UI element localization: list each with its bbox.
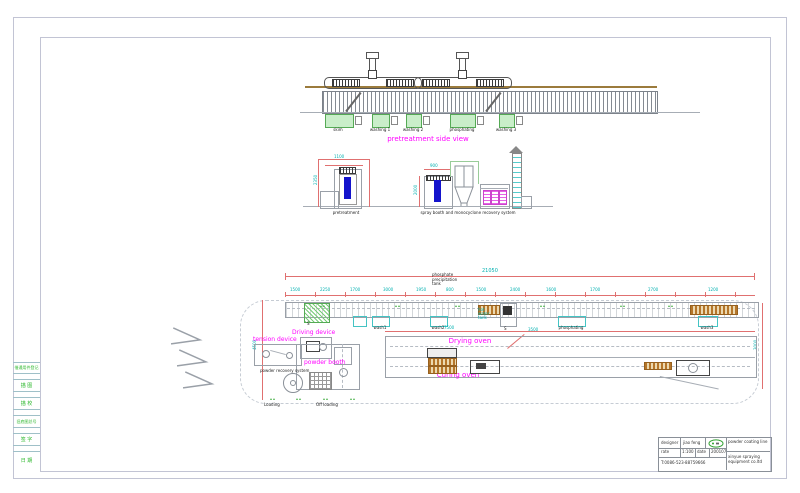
hot-tank-note: hot water tank bbox=[478, 308, 489, 320]
tension-wheel bbox=[286, 352, 293, 359]
fan-icon bbox=[368, 70, 377, 79]
stack-cap bbox=[366, 52, 379, 59]
tank-fitting bbox=[391, 116, 398, 125]
tank-fitting bbox=[516, 116, 523, 125]
scale-value: 1:100 bbox=[682, 450, 694, 455]
dim-value: 2700 bbox=[648, 288, 658, 292]
strip-divider bbox=[13, 379, 40, 380]
side-view-title: pretreatment side view bbox=[358, 136, 498, 143]
hanger-marks: ▴▴ bbox=[540, 304, 546, 308]
section-hatch bbox=[339, 167, 356, 174]
title-block-line bbox=[705, 437, 706, 448]
strip-cell-label: 描 图 bbox=[13, 382, 40, 389]
chimney-arrow-icon bbox=[509, 146, 523, 153]
recovery-fan-hub bbox=[290, 380, 296, 386]
hanger-marks: ▴▴ bbox=[323, 397, 329, 401]
section-tank bbox=[320, 191, 339, 209]
oven-heater-bar bbox=[428, 358, 457, 366]
tension-wheel bbox=[262, 350, 270, 358]
dim-value: 2400 bbox=[510, 288, 520, 292]
tank-label: washing 3 bbox=[486, 128, 526, 133]
dim-value: 7500 bbox=[444, 326, 454, 330]
powder-pipe bbox=[450, 161, 479, 162]
strip-divider bbox=[13, 391, 40, 392]
spray-system-label: spray booth and monocyclone recovery sys… bbox=[413, 211, 523, 216]
strip-divider bbox=[13, 427, 40, 428]
dim-line bbox=[762, 303, 763, 389]
drawing-sheet: 借通用件登记 描 图 描 校 旧底图总号 签 字 日 期 skim washin… bbox=[0, 0, 800, 493]
phosphate-note-line: tank bbox=[432, 282, 457, 287]
recovery-filter-grid bbox=[309, 372, 332, 390]
driving-device-label: Driving device bbox=[292, 330, 335, 336]
tunnel-heater-bar bbox=[690, 305, 738, 315]
tension-device-label: tension device bbox=[253, 337, 297, 343]
filter-top-line bbox=[480, 188, 508, 189]
dim-value: 3000 bbox=[383, 288, 393, 292]
tank-washing1 bbox=[372, 114, 390, 128]
recovery-fan-box bbox=[521, 196, 532, 209]
dim-value: 1500 bbox=[290, 288, 300, 292]
tank-label: washing 2 bbox=[393, 128, 433, 133]
pretreatment-label: pretreatment bbox=[315, 211, 377, 216]
dim-tick bbox=[285, 273, 286, 280]
strip-divider bbox=[13, 362, 40, 363]
oven-heater-bar bbox=[428, 366, 457, 374]
oven-conveyor-line bbox=[390, 346, 750, 347]
designer-label: designer bbox=[661, 441, 678, 446]
tank-washing2 bbox=[406, 114, 422, 128]
duct-hatch bbox=[422, 79, 450, 87]
strip-divider bbox=[13, 445, 40, 446]
date-value: 200107 bbox=[711, 450, 726, 455]
oven-heater-bar bbox=[644, 362, 672, 370]
tunnel-opening bbox=[344, 177, 351, 199]
dim-tick bbox=[754, 273, 755, 280]
tank-fitting bbox=[477, 116, 484, 125]
title-block-line bbox=[658, 457, 726, 458]
off-loading-label: Off loading bbox=[316, 403, 338, 408]
title-block-line bbox=[709, 448, 710, 457]
tank-fitting bbox=[423, 116, 430, 125]
hanger-marks: ▴▴ bbox=[668, 304, 674, 308]
fan-icon bbox=[458, 70, 467, 79]
title-block-line bbox=[695, 448, 696, 457]
strip-divider bbox=[13, 397, 40, 398]
burner-fan-icon bbox=[688, 363, 698, 373]
dim-line bbox=[285, 276, 755, 277]
loading-label: Loading bbox=[264, 403, 280, 408]
dim-value: 2250 bbox=[320, 288, 330, 292]
dim-line bbox=[385, 331, 755, 332]
hanger-marks: ▴▴ bbox=[270, 397, 276, 401]
filter-cartridge bbox=[499, 190, 507, 205]
dim-value: 2350 bbox=[314, 175, 318, 185]
dim-value: 1500 bbox=[476, 288, 486, 292]
dim-line bbox=[325, 165, 363, 166]
station-tank bbox=[353, 316, 367, 327]
hanger-marks: ▴▴ bbox=[350, 397, 356, 401]
conveyor-centerline bbox=[287, 308, 755, 309]
dim-line bbox=[318, 159, 370, 160]
strip-cell-label: 日 期 bbox=[13, 457, 40, 464]
dim-line bbox=[419, 176, 420, 207]
company-name: xinyue spraying equipment co.ltd bbox=[728, 454, 769, 464]
booth-opening bbox=[434, 180, 441, 202]
strip-divider bbox=[13, 373, 40, 374]
strip-divider bbox=[13, 433, 40, 434]
strip-cell-label: 旧底图总号 bbox=[13, 419, 40, 425]
strip-divider bbox=[13, 451, 40, 452]
cyclone-icon bbox=[452, 165, 476, 207]
tank-phosphating bbox=[450, 114, 476, 128]
station-label: wash1 bbox=[368, 326, 392, 331]
dim-value: 1100 bbox=[334, 155, 344, 159]
filter-cartridge bbox=[483, 190, 491, 205]
scale-label: rate bbox=[661, 450, 669, 455]
powder-booth-label: powder booth bbox=[304, 360, 346, 366]
title-block-line bbox=[680, 437, 681, 457]
powder-pipe bbox=[450, 161, 451, 177]
phosphate-note: phosphate precipitation tank bbox=[432, 273, 457, 287]
dim-ticks bbox=[285, 292, 755, 297]
strip-divider bbox=[13, 409, 40, 410]
hanger-marks: ▴▴ bbox=[395, 304, 401, 308]
title-block-line bbox=[726, 451, 770, 452]
dim-value: 1700 bbox=[590, 288, 600, 292]
strip-cell-label: 借通用件登记 bbox=[13, 365, 40, 371]
duct-hatch bbox=[476, 79, 504, 87]
strip-cell-label: 描 校 bbox=[13, 400, 40, 407]
dim-line bbox=[424, 169, 451, 170]
hanger-marks: ▴▴ bbox=[455, 304, 461, 308]
duct-hatch bbox=[332, 79, 360, 87]
spray-gun bbox=[339, 368, 348, 377]
tank-skim bbox=[325, 114, 354, 128]
dim-value: 1700 bbox=[350, 288, 360, 292]
device-core bbox=[503, 306, 512, 315]
stack-cap bbox=[456, 52, 469, 59]
powder-recovery-label: powder recovery system bbox=[260, 369, 309, 374]
dim-value: 800 bbox=[446, 288, 454, 292]
product-name: powder coating line bbox=[728, 439, 769, 444]
dim-line bbox=[318, 159, 319, 207]
tank-label: phosphating bbox=[442, 128, 482, 133]
dim-overall: 21050 bbox=[482, 269, 498, 274]
date-label: date bbox=[697, 450, 706, 455]
powder-pipe bbox=[478, 161, 479, 184]
tank-fitting bbox=[355, 116, 362, 125]
dim-line bbox=[369, 159, 370, 207]
drying-oven-label: Drying oven bbox=[425, 338, 515, 345]
oven-burner bbox=[427, 348, 457, 358]
burner-core bbox=[476, 363, 486, 369]
duct-hatch bbox=[386, 79, 414, 87]
company-logo bbox=[708, 439, 724, 448]
dim-value: 1600 bbox=[546, 288, 556, 292]
station-label: phosphating bbox=[552, 326, 590, 331]
dim-value: 1200 bbox=[708, 288, 718, 292]
tank-washing3 bbox=[499, 114, 515, 128]
phone-number: T:0086-523-88759666 bbox=[661, 461, 705, 466]
hanger-marks: ▴▴ bbox=[296, 397, 302, 401]
pretreatment-tunnel-side bbox=[322, 91, 658, 114]
strip-divider bbox=[13, 415, 40, 416]
station-mark: S bbox=[307, 322, 310, 327]
station-label: wash3 bbox=[694, 326, 720, 331]
tank-label: skim bbox=[318, 128, 358, 133]
tunnel-entry-station bbox=[304, 303, 330, 323]
strip-cell-label: 签 字 bbox=[13, 436, 40, 443]
hanger-marks: ▴▴ bbox=[620, 304, 626, 308]
dim-value: 1950 bbox=[416, 288, 426, 292]
dim-value: 2000 bbox=[414, 185, 418, 195]
designer-name: jiao feng bbox=[683, 441, 700, 446]
filter-cartridge bbox=[491, 190, 499, 205]
ground-line bbox=[300, 112, 700, 113]
hot-tank-note-line: tank bbox=[478, 316, 489, 320]
hanger-marks: ▴▴ bbox=[320, 304, 326, 308]
dim-value: 900 bbox=[430, 164, 438, 168]
